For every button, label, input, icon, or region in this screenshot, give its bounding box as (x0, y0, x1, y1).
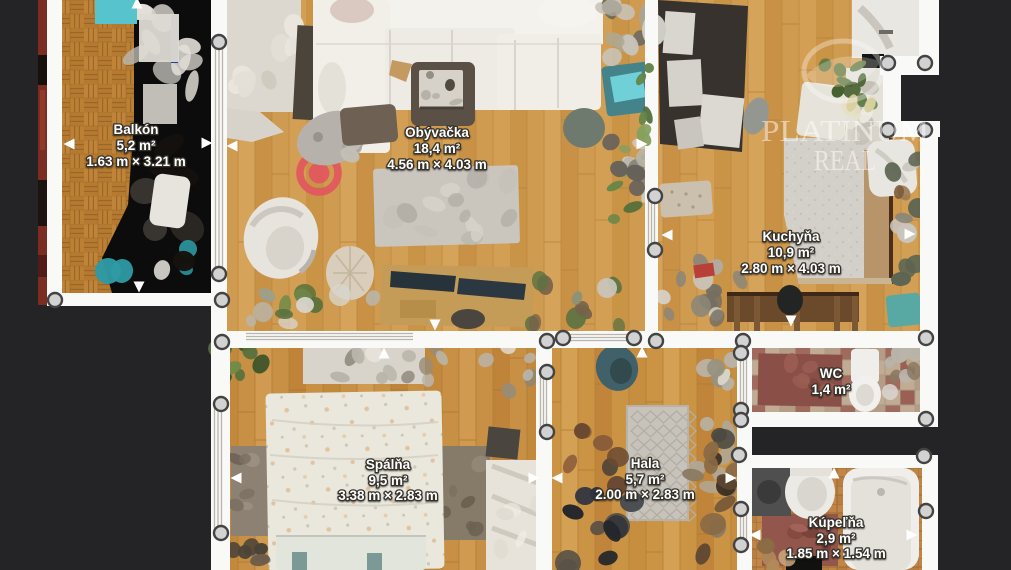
svg-text:Obývačka: Obývačka (405, 125, 469, 140)
svg-text:1.63 m × 3.21 m: 1.63 m × 3.21 m (86, 154, 185, 169)
svg-text:1.85 m × 1.54 m: 1.85 m × 1.54 m (786, 546, 885, 561)
svg-text:10,9 m²: 10,9 m² (768, 245, 815, 260)
svg-text:5,7 m²: 5,7 m² (625, 472, 665, 487)
svg-text:Hala: Hala (631, 456, 660, 471)
svg-text:18,4 m²: 18,4 m² (414, 141, 461, 156)
svg-text:Spálňa: Spálňa (366, 457, 411, 472)
svg-text:2,9 m²: 2,9 m² (816, 531, 856, 546)
svg-text:Kúpeľňa: Kúpeľňa (809, 515, 864, 530)
svg-text:Balkón: Balkón (113, 122, 158, 137)
svg-text:REAL: REAL (814, 145, 876, 177)
svg-text:WC: WC (820, 366, 843, 381)
svg-text:9,5 m²: 9,5 m² (368, 473, 408, 488)
svg-text:5,2 m²: 5,2 m² (116, 138, 156, 153)
svg-text:2.80 m × 4.03 m: 2.80 m × 4.03 m (741, 261, 840, 276)
svg-text:1,4 m²: 1,4 m² (811, 382, 851, 397)
svg-text:2.00 m × 2.83 m: 2.00 m × 2.83 m (595, 487, 694, 502)
svg-text:3.38 m × 2.83 m: 3.38 m × 2.83 m (338, 488, 437, 503)
svg-text:4.56 m × 4.03 m: 4.56 m × 4.03 m (387, 157, 486, 172)
svg-text:PLATINUM: PLATINUM (761, 113, 929, 148)
svg-text:Kuchyňa: Kuchyňa (762, 229, 820, 244)
